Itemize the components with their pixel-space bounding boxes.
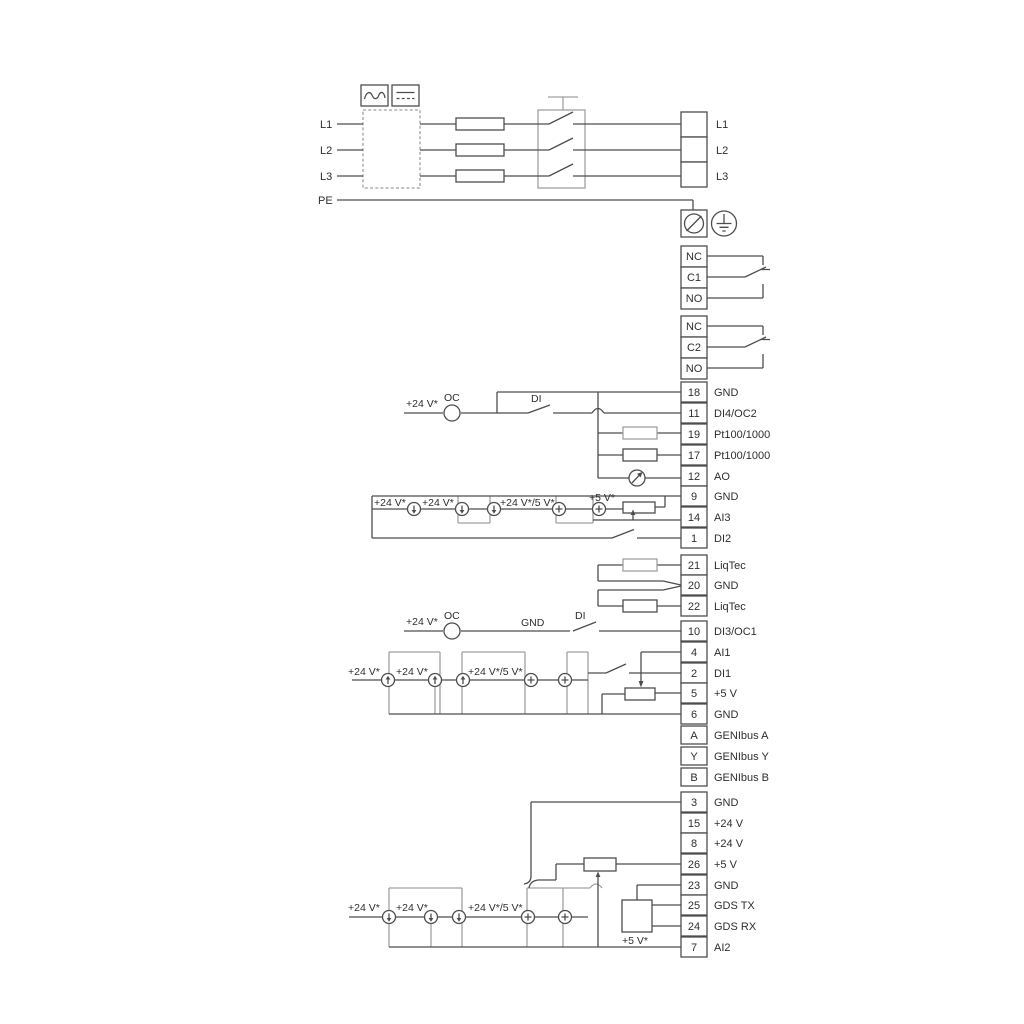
plus24-label: +24 V* <box>406 398 438 410</box>
dc-symbol-box <box>392 85 419 106</box>
strip-a-wires <box>372 392 681 538</box>
relay1-nc: NC <box>686 251 702 263</box>
mains-terminal-l3 <box>681 162 707 187</box>
mains-label-l3: L3 <box>716 171 728 183</box>
wiring-diagram: L1 L2 L3 PE L1 L2 L3 NC C1 NO NC C2 NO <box>0 0 1024 1024</box>
relay1-section: NC C1 NO <box>681 246 770 309</box>
terminal-number: 6 <box>691 709 697 721</box>
terminal-number: 24 <box>688 921 700 933</box>
terminal-number: 17 <box>688 450 700 462</box>
di-label: DI <box>531 393 542 405</box>
gnd-label: GND <box>521 617 545 629</box>
input-label-pe: PE <box>318 195 333 207</box>
down-arrowheads <box>412 510 497 514</box>
input-label-l3: L3 <box>320 171 332 183</box>
mains-label-l2: L2 <box>716 145 728 157</box>
oc-label: OC <box>444 610 460 622</box>
terminal-number: 8 <box>691 838 697 850</box>
terminal-label: GND <box>714 580 739 592</box>
plus24or5-label: +24 V*/5 V* <box>468 666 523 678</box>
terminal-label: +5 V <box>714 688 738 700</box>
fuse <box>456 170 504 182</box>
plus24-label: +24 V* <box>396 902 428 914</box>
oc-label: OC <box>444 392 460 404</box>
plus24-label: +24 V* <box>406 616 438 628</box>
terminal-label: GENIbus A <box>714 730 769 742</box>
plus24-label: +24 V* <box>374 497 406 509</box>
terminal-label: GENIbus Y <box>714 751 769 763</box>
terminal-label: +5 V <box>714 859 738 871</box>
pt-sensor-resistor <box>623 427 657 439</box>
strip-b-wiring: 21 LiqTec 20 GND 22 LiqTec <box>598 555 746 616</box>
terminal-number: 20 <box>688 580 700 592</box>
terminal-number: 2 <box>691 668 697 680</box>
relay2-no: NO <box>686 363 703 375</box>
mains-terminal-l1 <box>681 112 707 137</box>
terminal-label: DI3/OC1 <box>714 626 757 638</box>
strip-c-wiring: +24 V* OC GND DI +24 V* +24 V* +24 V*/5 … <box>348 610 769 786</box>
down-arrowheads <box>387 918 462 922</box>
terminal-label: AI3 <box>714 512 731 524</box>
plus24-label: +24 V* <box>396 666 428 678</box>
strip-a-wiring: +24 V* OC DI +24 V* +24 V* +24 V*/5 V* +… <box>372 382 770 548</box>
plus24or5-label: +24 V*/5 V* <box>500 497 555 509</box>
di-label: DI <box>575 610 586 622</box>
terminal-number: 15 <box>688 818 700 830</box>
terminal-label: GENIbus B <box>714 772 769 784</box>
relay2-c2: C2 <box>687 342 701 354</box>
plus5-label: +5 V* <box>622 935 648 947</box>
mains-terminal-l2 <box>681 137 707 162</box>
terminal-number: Y <box>690 751 698 763</box>
terminal-number: 14 <box>688 512 700 524</box>
open-collector-icon <box>444 405 460 421</box>
liqtec-sensor-resistor <box>623 600 657 612</box>
plus24-label: +24 V* <box>348 666 380 678</box>
terminal-label: +24 V <box>714 818 744 830</box>
terminal-number: 19 <box>688 429 700 441</box>
terminal-label: GDS RX <box>714 921 757 933</box>
terminal-number: 7 <box>691 942 697 954</box>
liqtec-sensor-resistor <box>623 559 657 571</box>
mains-label-l1: L1 <box>716 119 728 131</box>
terminal-label: +24 V <box>714 838 744 850</box>
terminal-label: GND <box>714 491 739 503</box>
terminal-number: 22 <box>688 601 700 613</box>
input-label-l2: L2 <box>320 145 332 157</box>
terminal-number: 4 <box>691 647 697 659</box>
mains-section: L1 L2 L3 PE L1 L2 L3 <box>318 85 737 237</box>
terminal-number: 5 <box>691 688 697 700</box>
terminal-label: GND <box>714 387 739 399</box>
emc-filter-box <box>363 110 420 188</box>
ai1-di1-wires <box>352 652 681 714</box>
terminal-label: LiqTec <box>714 560 746 572</box>
terminal-number: 23 <box>688 880 700 892</box>
mains-wires <box>337 112 693 210</box>
terminal-label: AO <box>714 471 730 483</box>
potentiometer <box>584 858 616 871</box>
terminal-number: 12 <box>688 471 700 483</box>
terminal-number: 25 <box>688 900 700 912</box>
strip-d-wiring: +24 V* +24 V* +24 V*/5 V* +5 V* 3 GND 15… <box>348 792 757 957</box>
terminal-number: 1 <box>691 533 697 545</box>
terminal-label: GND <box>714 709 739 721</box>
terminal-label: GND <box>714 797 739 809</box>
terminal-label: LiqTec <box>714 601 746 613</box>
terminal-label: AI2 <box>714 942 731 954</box>
potentiometer-wiper-arrowhead <box>596 872 601 878</box>
terminal-number: A <box>690 730 698 742</box>
relay1-no: NO <box>686 293 703 305</box>
terminal-label: DI2 <box>714 533 731 545</box>
option-brackets <box>389 652 588 714</box>
plus24or5-label: +24 V*/5 V* <box>468 902 523 914</box>
relay2-nc: NC <box>686 321 702 333</box>
terminal-label: GND <box>714 880 739 892</box>
terminal-number: 11 <box>688 408 699 420</box>
open-collector-icon <box>444 623 460 639</box>
terminal-number: 10 <box>688 626 700 638</box>
terminal-number: 3 <box>691 797 697 809</box>
potentiometer-wiper-arrowhead <box>639 681 644 688</box>
terminal-number: 9 <box>691 491 697 503</box>
gds-sensor-box <box>622 900 652 932</box>
terminal-label: Pt100/1000 <box>714 450 770 462</box>
terminal-number: 21 <box>688 560 700 572</box>
potentiometer <box>623 502 655 513</box>
relay1-contact-wires <box>707 256 770 298</box>
plus24-label: +24 V* <box>422 497 454 509</box>
fuse <box>456 118 504 130</box>
terminal-label: AI1 <box>714 647 731 659</box>
terminal-label: Pt100/1000 <box>714 429 770 441</box>
terminal-number: 18 <box>688 387 700 399</box>
terminal-label: DI4/OC2 <box>714 408 757 420</box>
terminal-number: B <box>690 772 697 784</box>
fuse <box>456 144 504 156</box>
relay2-section: NC C2 NO <box>681 316 770 379</box>
terminal-label: GDS TX <box>714 900 755 912</box>
relay2-contact-wires <box>707 326 770 368</box>
terminal-label: DI1 <box>714 668 731 680</box>
terminal-number: 26 <box>688 859 700 871</box>
relay1-c1: C1 <box>687 272 701 284</box>
pt-sensor-resistor <box>623 449 657 461</box>
plus24-label: +24 V* <box>348 902 380 914</box>
input-label-l1: L1 <box>320 119 332 131</box>
plus5-label: +5 V* <box>589 492 615 504</box>
potentiometer <box>625 688 655 700</box>
